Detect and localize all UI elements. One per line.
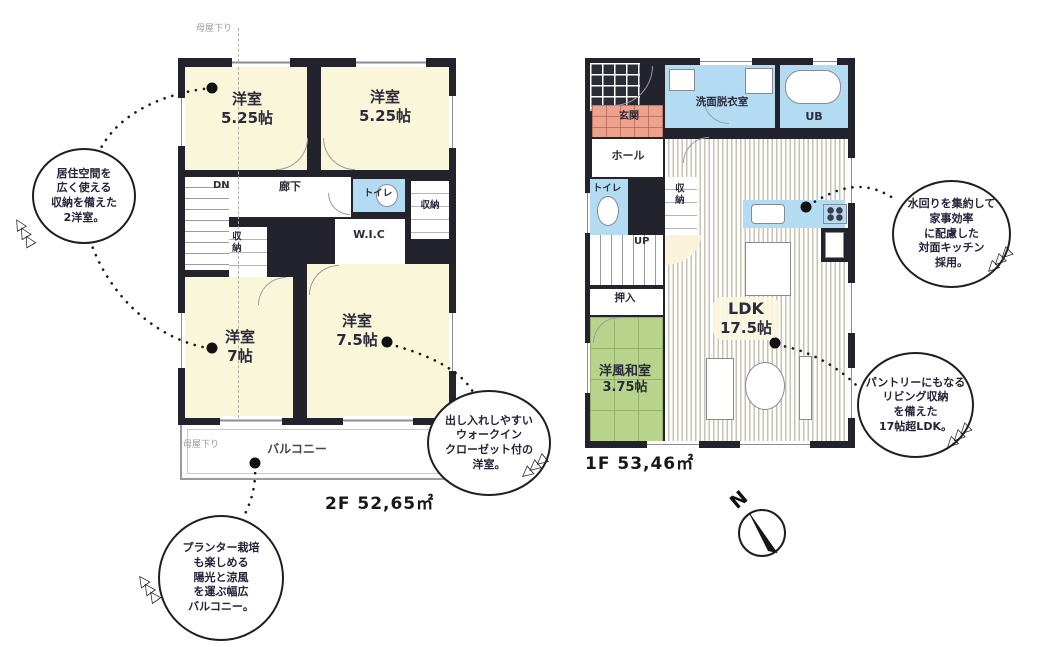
window (700, 58, 752, 65)
window (647, 441, 699, 448)
window (178, 313, 185, 368)
accent-triangles-icon: ◁◁◁ (9, 214, 39, 248)
living-table-icon (745, 362, 785, 410)
window (449, 96, 456, 148)
label-1f-closet: 収納 (672, 183, 684, 206)
label-1f-washitsu: 洋風和室 3.75帖 (599, 364, 651, 397)
roof-line (238, 28, 239, 62)
window (343, 416, 413, 425)
dining-table-icon (745, 242, 791, 296)
label-2f-balcony: バルコニー (267, 442, 327, 457)
window (178, 98, 185, 146)
window (848, 368, 855, 418)
roof-note-balcony: 母屋下り (183, 440, 219, 451)
window (848, 158, 855, 203)
window (232, 58, 290, 67)
label-1f-oshiire: 押入 (615, 292, 636, 305)
sofa-icon (706, 358, 734, 420)
callout-two-bedrooms: 居住空間を 広く使える 収納を備えた 2洋室。 (32, 148, 136, 244)
label-2f-closet-right: 収納 (420, 200, 439, 212)
window (740, 441, 810, 448)
door-arc (613, 66, 653, 106)
compass-needle-icon (738, 509, 786, 557)
window (813, 58, 837, 65)
label-2f-bedroom2: 洋室 5.25帖 (359, 88, 411, 126)
floor-plan-2f (178, 58, 456, 425)
bathtub-icon (785, 70, 841, 104)
window (585, 343, 590, 393)
tv-board-icon (799, 356, 812, 420)
window (848, 283, 855, 333)
callout-leader-lines (0, 0, 1039, 647)
vanity-icon (745, 68, 773, 94)
label-1f-stairs-up: UP (634, 236, 649, 249)
label-1f-ldk: LDK 17.5帖 (713, 297, 779, 340)
toilet-bowl-icon (597, 196, 619, 226)
label-1f-washroom: 洗面脱衣室 (696, 96, 749, 109)
roof-note-top: 母屋下り (196, 24, 232, 35)
window (220, 416, 282, 425)
floor-plan-canvas: 母屋下り 洋室 5.25帖 洋室 5.25帖 DN 廊下 トイレ 収納 収納 W… (0, 0, 1039, 647)
callout-balcony: プランター栽培 も楽しめる 陽光と涼風 を運ぶ幅広 バルコニー。 (158, 515, 284, 641)
window (585, 193, 590, 233)
label-2f-bedroom1: 洋室 5.25帖 (221, 90, 273, 128)
callout-wic: 出し入れしやすい ウォークイン クローゼット付の 洋室。 (427, 390, 551, 496)
label-2f-stairs-dn: DN (213, 180, 230, 193)
label-2f-bedroom3: 洋室 7帖 (225, 328, 255, 366)
floor2-area-title: 2F 52,65㎡ (325, 489, 434, 514)
label-2f-wic: W.I.C (353, 228, 385, 242)
kitchen-sink-icon (751, 204, 785, 224)
label-1f-toilet: トイレ (593, 183, 622, 195)
refrigerator-icon (825, 232, 844, 258)
window (449, 313, 456, 371)
label-1f-bath-ub: UB (805, 110, 822, 124)
window (356, 58, 426, 67)
label-2f-toilet: トイレ (364, 188, 393, 200)
label-2f-closet-mid: 収納 (229, 231, 241, 254)
floor1-area-title: 1F 53,46㎡ (585, 449, 694, 474)
washing-machine-icon (669, 69, 695, 91)
label-1f-hall: ホール (612, 149, 645, 163)
label-1f-entrance: 玄関 (619, 111, 639, 124)
stove-icon (823, 204, 847, 224)
label-2f-hallway: 廊下 (279, 180, 301, 194)
label-2f-bedroom4: 洋室 7.5帖 (336, 312, 378, 350)
room-1f-stairs (590, 235, 663, 285)
room-2f-wic (335, 219, 405, 266)
